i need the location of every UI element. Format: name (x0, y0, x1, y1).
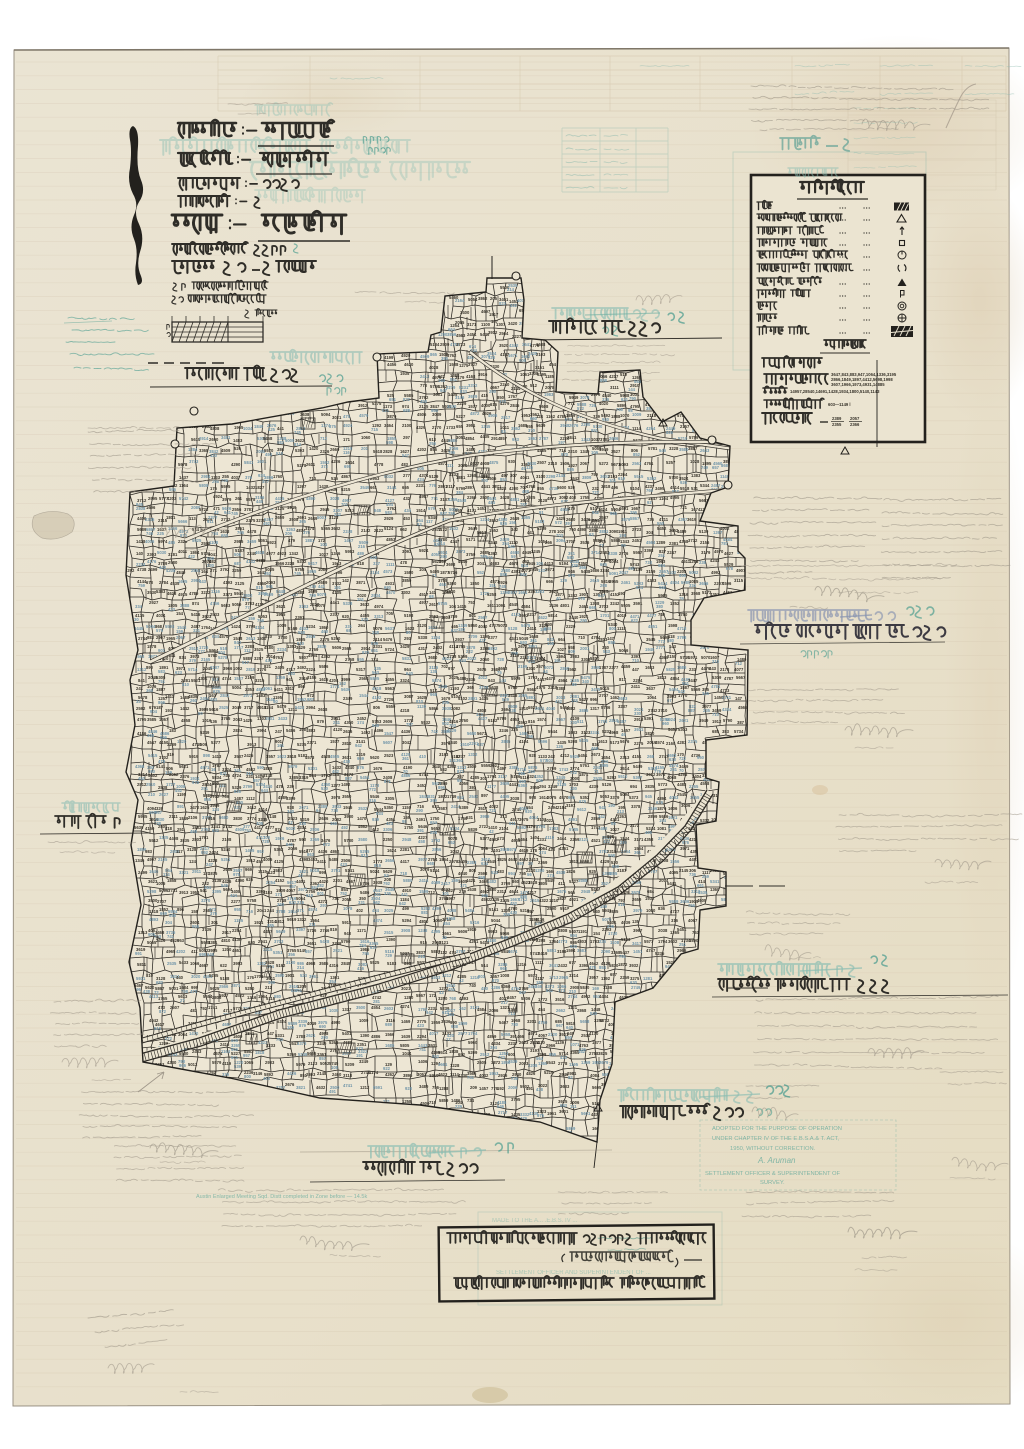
svg-text:1566: 1566 (385, 1032, 395, 1037)
svg-text:1368: 1368 (446, 916, 456, 921)
svg-text:3751: 3751 (331, 868, 341, 873)
svg-text:1037: 1037 (319, 552, 329, 557)
svg-text:2539: 2539 (508, 1059, 518, 1064)
svg-text:2540: 2540 (469, 794, 479, 799)
svg-text:3976: 3976 (656, 772, 666, 777)
svg-text:983: 983 (145, 849, 153, 854)
svg-text:4881: 4881 (510, 497, 520, 502)
svg-text:5227: 5227 (456, 414, 466, 419)
svg-text:952: 952 (457, 795, 465, 800)
svg-text:3388: 3388 (256, 558, 266, 563)
svg-text:229: 229 (455, 1104, 463, 1109)
svg-text:3457: 3457 (507, 995, 517, 1000)
svg-text:3686: 3686 (699, 581, 709, 586)
svg-text:3119: 3119 (510, 653, 520, 658)
svg-text:4684: 4684 (521, 604, 531, 609)
svg-text:495: 495 (658, 573, 666, 578)
svg-text:4239: 4239 (589, 784, 599, 789)
svg-text:2507: 2507 (537, 460, 547, 465)
svg-text:3215: 3215 (255, 678, 265, 683)
svg-text:281: 281 (373, 999, 381, 1004)
svg-text:1164: 1164 (221, 1049, 231, 1054)
svg-text:42: 42 (489, 829, 494, 834)
svg-text:1162: 1162 (546, 414, 556, 419)
svg-text:376: 376 (245, 475, 253, 480)
svg-text:487: 487 (477, 742, 485, 747)
svg-text:4199: 4199 (384, 355, 394, 360)
svg-text:2172: 2172 (630, 823, 640, 828)
svg-text:792: 792 (383, 881, 391, 886)
svg-text:5313: 5313 (345, 508, 355, 513)
svg-text:4005: 4005 (263, 857, 273, 862)
svg-text:4021: 4021 (569, 897, 579, 902)
svg-text:4333: 4333 (647, 578, 657, 583)
svg-text:1826: 1826 (566, 869, 576, 874)
svg-text:2985: 2985 (234, 539, 244, 544)
svg-text:5630: 5630 (134, 825, 144, 830)
svg-text:3429: 3429 (400, 644, 410, 649)
svg-text:3590: 3590 (275, 973, 285, 978)
svg-text:5073: 5073 (498, 623, 508, 628)
svg-text:2636: 2636 (319, 816, 329, 821)
svg-text:454: 454 (443, 921, 451, 926)
svg-text:1638: 1638 (467, 887, 477, 892)
svg-text:2164: 2164 (455, 298, 465, 303)
svg-text:3476: 3476 (581, 517, 591, 522)
svg-text:1955: 1955 (307, 569, 317, 574)
svg-text:1139: 1139 (417, 704, 427, 709)
svg-text:484: 484 (488, 500, 496, 505)
svg-text:5983: 5983 (488, 929, 498, 934)
svg-text:4170: 4170 (589, 1031, 599, 1036)
svg-text:669: 669 (589, 605, 597, 610)
svg-text:3324: 3324 (400, 678, 410, 683)
svg-text:445: 445 (256, 499, 264, 504)
svg-text:458: 458 (418, 839, 426, 844)
svg-text:2281: 2281 (400, 847, 410, 852)
svg-text:453: 453 (403, 516, 411, 521)
svg-text:3621: 3621 (276, 604, 286, 609)
svg-text:879: 879 (299, 1023, 307, 1028)
svg-text:3938: 3938 (373, 880, 383, 885)
svg-text:5452: 5452 (657, 526, 667, 531)
svg-text:68: 68 (429, 594, 434, 599)
svg-text:5263: 5263 (329, 1040, 339, 1045)
svg-text:2334: 2334 (297, 825, 307, 830)
svg-text:4298: 4298 (678, 772, 688, 777)
svg-text:4574: 4574 (655, 740, 665, 745)
svg-text:5094: 5094 (321, 412, 331, 417)
svg-text:4873: 4873 (547, 496, 557, 501)
svg-text:955: 955 (234, 907, 242, 912)
svg-text:1749: 1749 (447, 794, 457, 799)
svg-text:5790: 5790 (341, 939, 351, 944)
svg-text:846: 846 (535, 984, 543, 989)
svg-text:441: 441 (254, 825, 262, 830)
svg-text:3732: 3732 (688, 538, 698, 543)
svg-text:2110: 2110 (548, 461, 558, 466)
svg-text:3602: 3602 (668, 939, 678, 944)
svg-text:2686: 2686 (609, 436, 619, 441)
svg-text:4891: 4891 (568, 817, 578, 822)
svg-text:385: 385 (267, 923, 275, 928)
svg-text:2104: 2104 (499, 826, 509, 831)
svg-text:176: 176 (210, 486, 218, 491)
svg-text:2499: 2499 (148, 567, 158, 572)
svg-text:1945: 1945 (343, 805, 353, 810)
svg-text:879: 879 (317, 719, 325, 724)
svg-text:2389: 2389 (832, 416, 842, 421)
svg-text:5563: 5563 (385, 686, 395, 691)
svg-text:2001: 2001 (580, 646, 590, 651)
svg-text:887: 887 (688, 708, 696, 713)
svg-text:1605: 1605 (178, 579, 188, 584)
svg-text:4509: 4509 (420, 354, 430, 359)
svg-text:3885: 3885 (609, 909, 619, 914)
svg-text:316: 316 (369, 798, 377, 803)
svg-text:4434: 4434 (599, 994, 609, 999)
svg-text:826: 826 (234, 789, 242, 794)
svg-text:1312: 1312 (468, 752, 478, 757)
svg-text:651: 651 (389, 397, 397, 402)
svg-text:787: 787 (406, 722, 414, 727)
svg-text:337: 337 (373, 561, 381, 566)
svg-text:2294: 2294 (417, 1034, 427, 1039)
svg-text:251: 251 (201, 786, 209, 791)
svg-text:4012: 4012 (478, 675, 488, 680)
svg-text:4965: 4965 (166, 949, 176, 954)
svg-text:705: 705 (386, 611, 394, 616)
svg-text:2411: 2411 (631, 684, 641, 689)
svg-text:4618: 4618 (255, 550, 265, 555)
svg-text:1060: 1060 (361, 435, 371, 440)
svg-text:4645: 4645 (487, 859, 497, 864)
svg-text:3818: 3818 (601, 484, 611, 489)
svg-text:5124: 5124 (384, 526, 394, 531)
svg-text:2022: 2022 (544, 818, 554, 823)
svg-text:1971: 1971 (243, 693, 253, 698)
svg-text:1792: 1792 (431, 838, 441, 843)
svg-text:4778: 4778 (374, 462, 384, 467)
svg-text:4144: 4144 (255, 625, 265, 630)
svg-text:2377: 2377 (488, 635, 498, 640)
svg-text:942: 942 (355, 743, 363, 748)
svg-text:4622: 4622 (538, 615, 548, 620)
svg-text:479: 479 (568, 506, 576, 511)
svg-text:1415: 1415 (479, 696, 489, 701)
svg-text:4741: 4741 (343, 1083, 353, 1088)
svg-text:756: 756 (362, 951, 370, 956)
svg-text:2375: 2375 (688, 739, 698, 744)
svg-text:452: 452 (138, 776, 146, 781)
svg-text:4573: 4573 (305, 755, 315, 760)
svg-text:3155: 3155 (307, 675, 317, 680)
svg-text:3444: 3444 (557, 836, 567, 841)
svg-text:4180: 4180 (264, 645, 274, 650)
svg-text:117: 117 (176, 849, 183, 854)
svg-text:365: 365 (299, 519, 307, 524)
svg-text:1639: 1639 (401, 1034, 411, 1039)
svg-text:5596: 5596 (538, 739, 548, 744)
svg-text:4226: 4226 (331, 459, 341, 464)
svg-text:622: 622 (510, 303, 518, 308)
svg-text:3680: 3680 (428, 655, 438, 660)
svg-text:5825: 5825 (666, 667, 676, 672)
svg-text:2615: 2615 (590, 578, 600, 583)
svg-text:1840: 1840 (254, 424, 264, 429)
svg-text:4875: 4875 (489, 460, 499, 465)
svg-text:4277: 4277 (265, 825, 275, 830)
svg-text:3191: 3191 (566, 803, 576, 808)
svg-text:1172: 1172 (438, 527, 448, 532)
svg-text:1318: 1318 (149, 909, 159, 914)
svg-text:5451: 5451 (578, 753, 588, 758)
svg-text:1200: 1200 (222, 947, 232, 952)
svg-text:159: 159 (176, 629, 184, 634)
svg-text:928: 928 (529, 753, 537, 758)
svg-text:1482: 1482 (487, 879, 497, 884)
svg-text:5658: 5658 (580, 1019, 590, 1024)
svg-text:1601: 1601 (257, 459, 267, 464)
svg-text:1091: 1091 (496, 603, 506, 608)
svg-text:5487: 5487 (617, 719, 627, 724)
svg-text:5965: 5965 (658, 593, 668, 598)
svg-text:3305: 3305 (385, 796, 395, 801)
svg-text:2227: 2227 (512, 334, 522, 339)
svg-text:178: 178 (530, 848, 538, 853)
svg-text:3832: 3832 (488, 646, 498, 651)
svg-text:530: 530 (321, 786, 329, 791)
svg-text:5312: 5312 (297, 559, 307, 564)
svg-text:1268: 1268 (467, 473, 477, 478)
svg-text:956: 956 (549, 1052, 557, 1057)
svg-text:340: 340 (582, 679, 590, 684)
svg-text:2854: 2854 (191, 568, 201, 573)
svg-text:424: 424 (417, 477, 425, 482)
svg-text:3887: 3887 (688, 446, 698, 451)
svg-text:241: 241 (333, 720, 341, 725)
svg-text:44: 44 (543, 669, 548, 674)
svg-text:104: 104 (320, 542, 328, 547)
svg-text:5275: 5275 (297, 742, 307, 747)
svg-text:3979: 3979 (631, 890, 641, 895)
svg-text:2848: 2848 (341, 961, 351, 966)
svg-text:5193: 5193 (404, 613, 414, 618)
svg-text:557: 557 (305, 949, 313, 954)
svg-text:1965: 1965 (166, 636, 176, 641)
svg-text:2662: 2662 (556, 1008, 566, 1013)
svg-text:468: 468 (190, 829, 198, 834)
svg-text:3241: 3241 (590, 730, 600, 735)
svg-text:247: 247 (206, 862, 214, 867)
svg-text:891: 891 (591, 428, 599, 433)
svg-text:2237: 2237 (508, 1041, 518, 1046)
svg-text:2512: 2512 (480, 1052, 490, 1057)
svg-text:5761: 5761 (580, 763, 590, 768)
svg-text:698: 698 (344, 464, 352, 469)
svg-text:4084: 4084 (609, 559, 619, 564)
svg-text:5079: 5079 (317, 592, 327, 597)
svg-text:5979: 5979 (296, 1062, 306, 1067)
svg-text:3151: 3151 (535, 365, 545, 370)
svg-text:1369: 1369 (581, 1060, 591, 1065)
svg-text:2105: 2105 (158, 857, 168, 862)
svg-text:268: 268 (647, 754, 655, 759)
svg-text:3908: 3908 (401, 928, 411, 933)
svg-text:56: 56 (527, 872, 532, 877)
svg-text:1858: 1858 (167, 878, 177, 883)
svg-text:2298: 2298 (546, 474, 556, 479)
svg-text:5129: 5129 (429, 474, 439, 479)
svg-text:1574: 1574 (537, 717, 547, 722)
svg-text:124: 124 (189, 859, 197, 864)
svg-text:3788: 3788 (276, 909, 286, 914)
svg-text:813: 813 (361, 853, 369, 858)
svg-text:666: 666 (546, 579, 554, 584)
svg-text:372: 372 (321, 464, 329, 469)
svg-text:1615: 1615 (319, 677, 329, 682)
svg-text:3087: 3087 (404, 694, 414, 699)
svg-text:3263: 3263 (617, 814, 627, 819)
svg-text:5458: 5458 (263, 436, 273, 441)
svg-text:1623: 1623 (277, 754, 287, 759)
svg-text:434: 434 (404, 508, 412, 513)
svg-text:1883: 1883 (306, 728, 316, 733)
svg-text:3368: 3368 (199, 448, 209, 453)
svg-text:1100: 1100 (481, 322, 491, 327)
svg-text:2683: 2683 (618, 696, 628, 701)
svg-text:2085: 2085 (455, 320, 465, 325)
svg-text:4068: 4068 (667, 775, 677, 780)
svg-text:2375: 2375 (320, 637, 330, 642)
svg-text:2144: 2144 (556, 473, 566, 478)
svg-text:925: 925 (589, 869, 597, 874)
svg-text:50: 50 (198, 711, 203, 716)
svg-text:593: 593 (299, 837, 307, 842)
svg-text:694: 694 (630, 784, 638, 789)
svg-text:5978: 5978 (178, 462, 188, 467)
svg-text:4775: 4775 (536, 685, 546, 690)
svg-text:5338: 5338 (418, 635, 428, 640)
svg-text:342: 342 (511, 527, 519, 532)
svg-text:1322: 1322 (297, 917, 307, 922)
svg-text:3420: 3420 (508, 321, 518, 326)
svg-text:5919: 5919 (189, 754, 199, 759)
svg-text:741: 741 (467, 1075, 475, 1080)
svg-text:4261: 4261 (469, 939, 479, 944)
svg-text:3818: 3818 (287, 754, 297, 759)
svg-text:1552: 1552 (489, 528, 499, 533)
svg-text:3633: 3633 (560, 1084, 570, 1089)
svg-text:2248: 2248 (343, 529, 353, 534)
svg-text:3418: 3418 (508, 693, 518, 698)
svg-text:2237: 2237 (527, 612, 537, 617)
svg-text:216: 216 (358, 544, 366, 549)
svg-text:422: 422 (188, 554, 196, 559)
svg-text:3798: 3798 (677, 635, 687, 640)
svg-text:4548: 4548 (457, 498, 467, 503)
svg-text:860: 860 (298, 684, 306, 689)
svg-text:189: 189 (287, 1025, 295, 1030)
svg-text:4077: 4077 (429, 1031, 439, 1036)
svg-text:1171: 1171 (357, 928, 367, 933)
svg-text:603—1149 l: 603—1149 l (828, 402, 851, 407)
svg-text:1932: 1932 (645, 896, 655, 901)
svg-text:616: 616 (490, 402, 498, 407)
svg-text:693: 693 (221, 533, 229, 538)
svg-text:2440: 2440 (569, 615, 579, 620)
svg-text:5091: 5091 (609, 571, 619, 576)
svg-text:3830: 3830 (446, 589, 456, 594)
svg-text:3537: 3537 (234, 754, 244, 759)
svg-text:4095: 4095 (669, 870, 679, 875)
svg-text:159: 159 (248, 616, 256, 621)
svg-text:1881: 1881 (456, 475, 466, 480)
svg-text:1770: 1770 (678, 693, 688, 698)
svg-text:1002: 1002 (720, 526, 730, 531)
svg-text:2414: 2414 (419, 878, 429, 883)
svg-text:1671: 1671 (508, 353, 518, 358)
svg-text:4761: 4761 (644, 461, 654, 466)
svg-text:4558: 4558 (700, 781, 710, 786)
svg-text:3469: 3469 (247, 539, 257, 544)
svg-text:82: 82 (568, 1075, 573, 1080)
svg-text:5805: 5805 (400, 1043, 410, 1048)
svg-text:4509: 4509 (221, 448, 231, 453)
svg-text:239: 239 (287, 784, 295, 789)
svg-text:676: 676 (578, 596, 586, 601)
svg-text:3762: 3762 (447, 353, 457, 358)
svg-text:4522: 4522 (235, 993, 245, 998)
svg-text:2235: 2235 (490, 897, 500, 902)
svg-text:4176: 4176 (147, 559, 157, 564)
svg-text:751: 751 (158, 679, 166, 684)
svg-text:5840: 5840 (580, 985, 590, 990)
svg-text:3949: 3949 (699, 718, 709, 723)
svg-text:915: 915 (420, 940, 428, 945)
svg-text:SETTLEMENT OFFICER AND SUPERI: SETTLEMENT OFFICER AND SUPERINTENDENT OF… (496, 1270, 651, 1276)
svg-text:5309: 5309 (712, 675, 722, 680)
svg-text:4478: 4478 (247, 529, 257, 534)
svg-text:4924: 4924 (343, 423, 353, 428)
svg-text:1252: 1252 (670, 601, 680, 606)
svg-text:2676: 2676 (477, 667, 487, 672)
svg-text:514: 514 (481, 963, 489, 968)
svg-text:5141: 5141 (345, 868, 355, 873)
svg-text:3111: 3111 (610, 385, 620, 390)
svg-text:740: 740 (469, 983, 477, 988)
svg-text:3591: 3591 (633, 601, 643, 606)
svg-text:2659: 2659 (275, 515, 285, 520)
svg-text:4521: 4521 (591, 838, 601, 843)
svg-text:4596: 4596 (722, 581, 732, 586)
svg-text:4795: 4795 (137, 717, 147, 722)
svg-text:192: 192 (497, 1086, 505, 1091)
svg-text:1517: 1517 (489, 312, 499, 317)
svg-text:394: 394 (490, 1045, 498, 1050)
svg-text:158: 158 (191, 909, 199, 914)
svg-text:2043: 2043 (233, 717, 243, 722)
svg-text:353: 353 (264, 571, 272, 576)
svg-text:1405: 1405 (245, 848, 255, 853)
svg-text:512: 512 (530, 383, 538, 388)
svg-text:1740: 1740 (608, 931, 618, 936)
svg-text:819: 819 (374, 863, 382, 868)
svg-text:5059: 5059 (232, 602, 242, 607)
svg-text:2125: 2125 (235, 581, 245, 586)
svg-text:2090: 2090 (601, 949, 611, 954)
svg-text:5012: 5012 (188, 1062, 198, 1067)
